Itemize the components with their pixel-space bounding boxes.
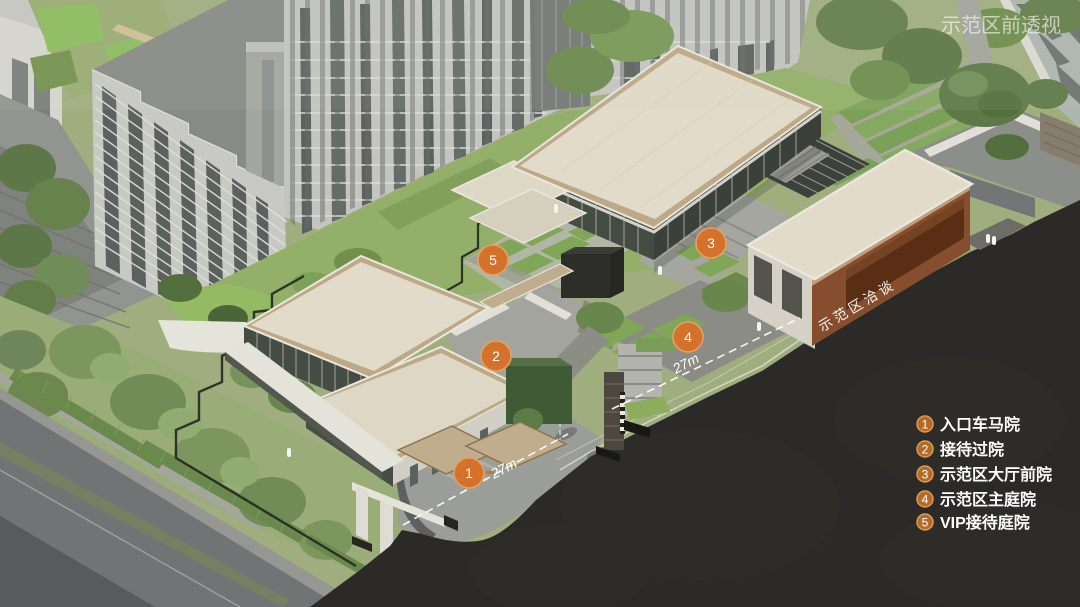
- svg-text:示范区大厅前院: 示范区大厅前院: [940, 465, 1052, 484]
- svg-text:3: 3: [707, 235, 715, 251]
- svg-text:2: 2: [922, 443, 929, 457]
- svg-text:1: 1: [465, 465, 473, 481]
- svg-text:5: 5: [922, 516, 929, 530]
- svg-text:入口车马院: 入口车马院: [940, 415, 1020, 434]
- svg-text:VIP接待庭院: VIP接待庭院: [940, 513, 1030, 532]
- svg-text:5: 5: [489, 252, 497, 268]
- svg-text:示范区主庭院: 示范区主庭院: [940, 490, 1036, 509]
- svg-text:3: 3: [922, 468, 929, 482]
- svg-text:4: 4: [684, 329, 692, 345]
- svg-text:4: 4: [922, 493, 929, 507]
- svg-text:示范区前透视: 示范区前透视: [941, 14, 1061, 37]
- svg-text:2: 2: [492, 348, 500, 364]
- svg-text:接待过院: 接待过院: [940, 440, 1004, 459]
- svg-text:1: 1: [922, 418, 929, 432]
